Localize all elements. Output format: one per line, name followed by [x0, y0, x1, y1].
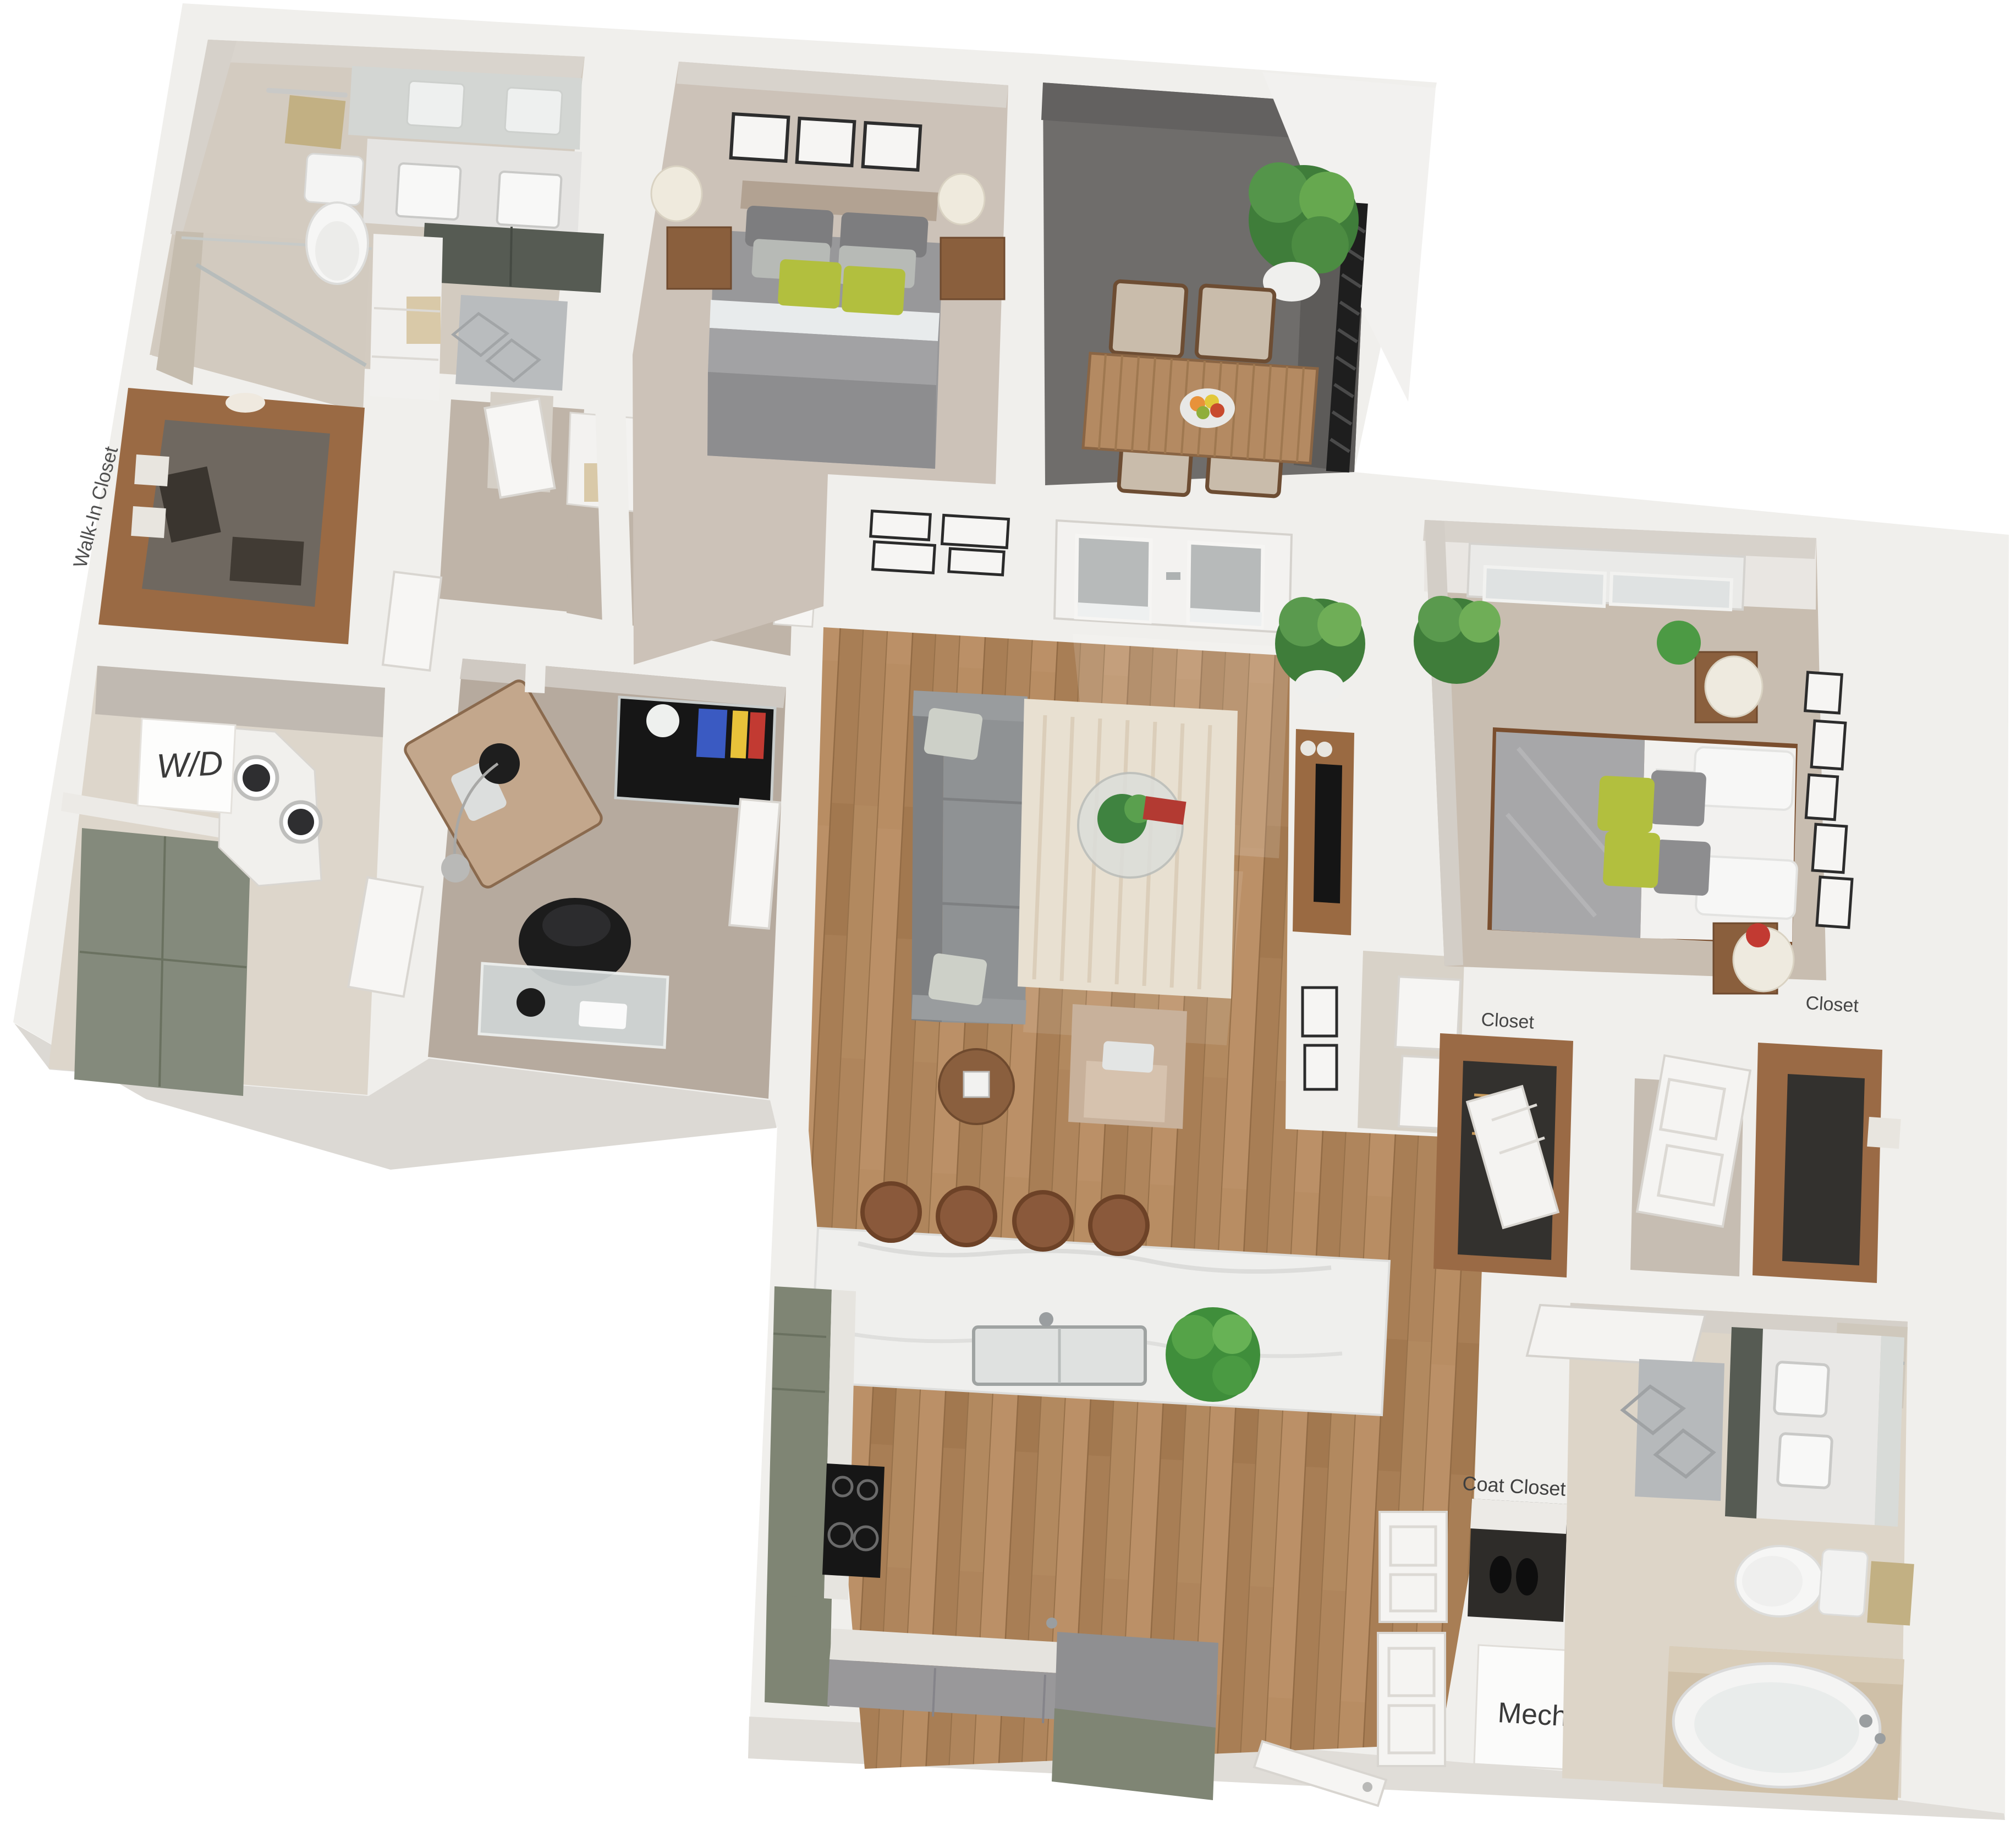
svg-text:W/D: W/D [156, 744, 224, 786]
svg-text:Closet: Closet [1481, 1009, 1535, 1033]
svg-text:Closet: Closet [1805, 993, 1860, 1017]
